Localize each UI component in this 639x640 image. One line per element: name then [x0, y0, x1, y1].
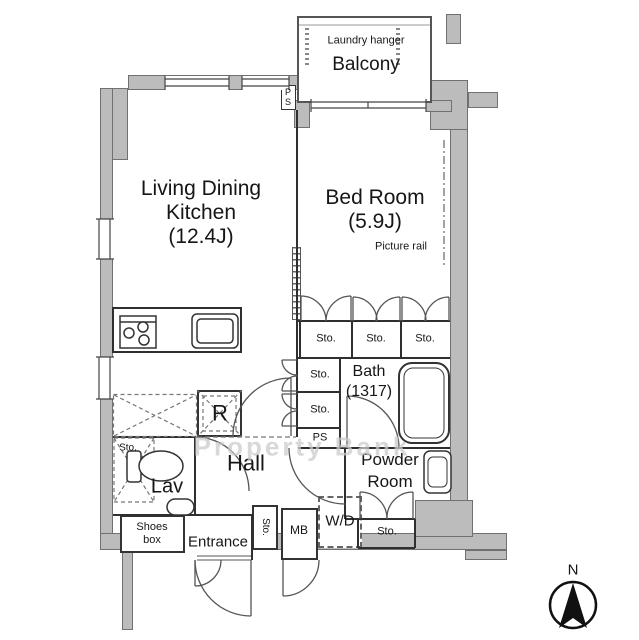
- wall-segment: [468, 92, 498, 108]
- bath-label: Bath (1317): [346, 362, 392, 402]
- ldk-label: Living Dining Kitchen (12.4J): [141, 177, 261, 249]
- stove-icon: [120, 316, 156, 348]
- wall-segment: [128, 75, 300, 90]
- shoes-box-label: Shoes box: [136, 521, 167, 547]
- storage-label: Sto.: [259, 518, 271, 536]
- shoes-line2: box: [136, 534, 167, 547]
- storage-label: Sto.: [119, 442, 137, 454]
- storage-label: Sto.: [377, 526, 397, 539]
- washer-dryer-label: W/D: [325, 512, 354, 529]
- ldk-line3: (12.4J): [141, 225, 261, 249]
- storage-label: Sto.: [316, 333, 336, 346]
- wall-segment: [450, 128, 468, 503]
- bath-line1: Bath: [346, 362, 392, 382]
- ps-line2: S: [285, 97, 291, 107]
- compass-icon: [550, 582, 596, 628]
- storage-label: Sto.: [310, 369, 330, 382]
- meter-box-label: MB: [290, 524, 308, 538]
- partition-hatch: [292, 247, 301, 320]
- powder-sink-icon: [424, 451, 451, 493]
- ps-top-label: P S: [285, 87, 291, 107]
- kitchen-sink-icon: [192, 314, 238, 348]
- wall-segment: [465, 550, 507, 560]
- powder-line2: Room: [361, 471, 419, 493]
- shoes-line1: Shoes: [136, 521, 167, 534]
- picture-rail-label: Picture rail: [375, 241, 427, 254]
- wall-segment: [415, 500, 473, 537]
- storage-label: Sto.: [415, 333, 435, 346]
- laundry-hanger-label: Laundry hanger: [327, 35, 404, 48]
- entrance-label: Entrance: [188, 533, 248, 550]
- bedroom-line2: (5.9J): [325, 210, 424, 234]
- compass-north-label: N: [568, 561, 579, 578]
- wall-segment: [446, 14, 461, 44]
- wall-segment: [294, 100, 310, 128]
- ps-line1: P: [285, 87, 291, 97]
- ldk-line2: Kitchen: [141, 201, 261, 225]
- bath-line2: (1317): [346, 382, 392, 402]
- balcony-label: Balcony: [332, 54, 400, 76]
- watermark: Property Bank: [194, 432, 411, 463]
- refrigerator-label: R: [212, 400, 228, 425]
- bedroom-label: Bed Room (5.9J): [325, 186, 424, 234]
- floor-plan: Living Dining Kitchen (12.4J) Bed Room (…: [0, 0, 639, 640]
- bedroom-line1: Bed Room: [325, 186, 424, 210]
- storage-label: Sto.: [366, 333, 386, 346]
- lav-label: Lav: [151, 476, 183, 499]
- wall-segment: [122, 550, 133, 630]
- storage-label: Sto.: [310, 404, 330, 417]
- wall-segment: [100, 88, 113, 548]
- ldk-line1: Living Dining: [141, 177, 261, 201]
- laundry-hanger-mark: [305, 28, 309, 68]
